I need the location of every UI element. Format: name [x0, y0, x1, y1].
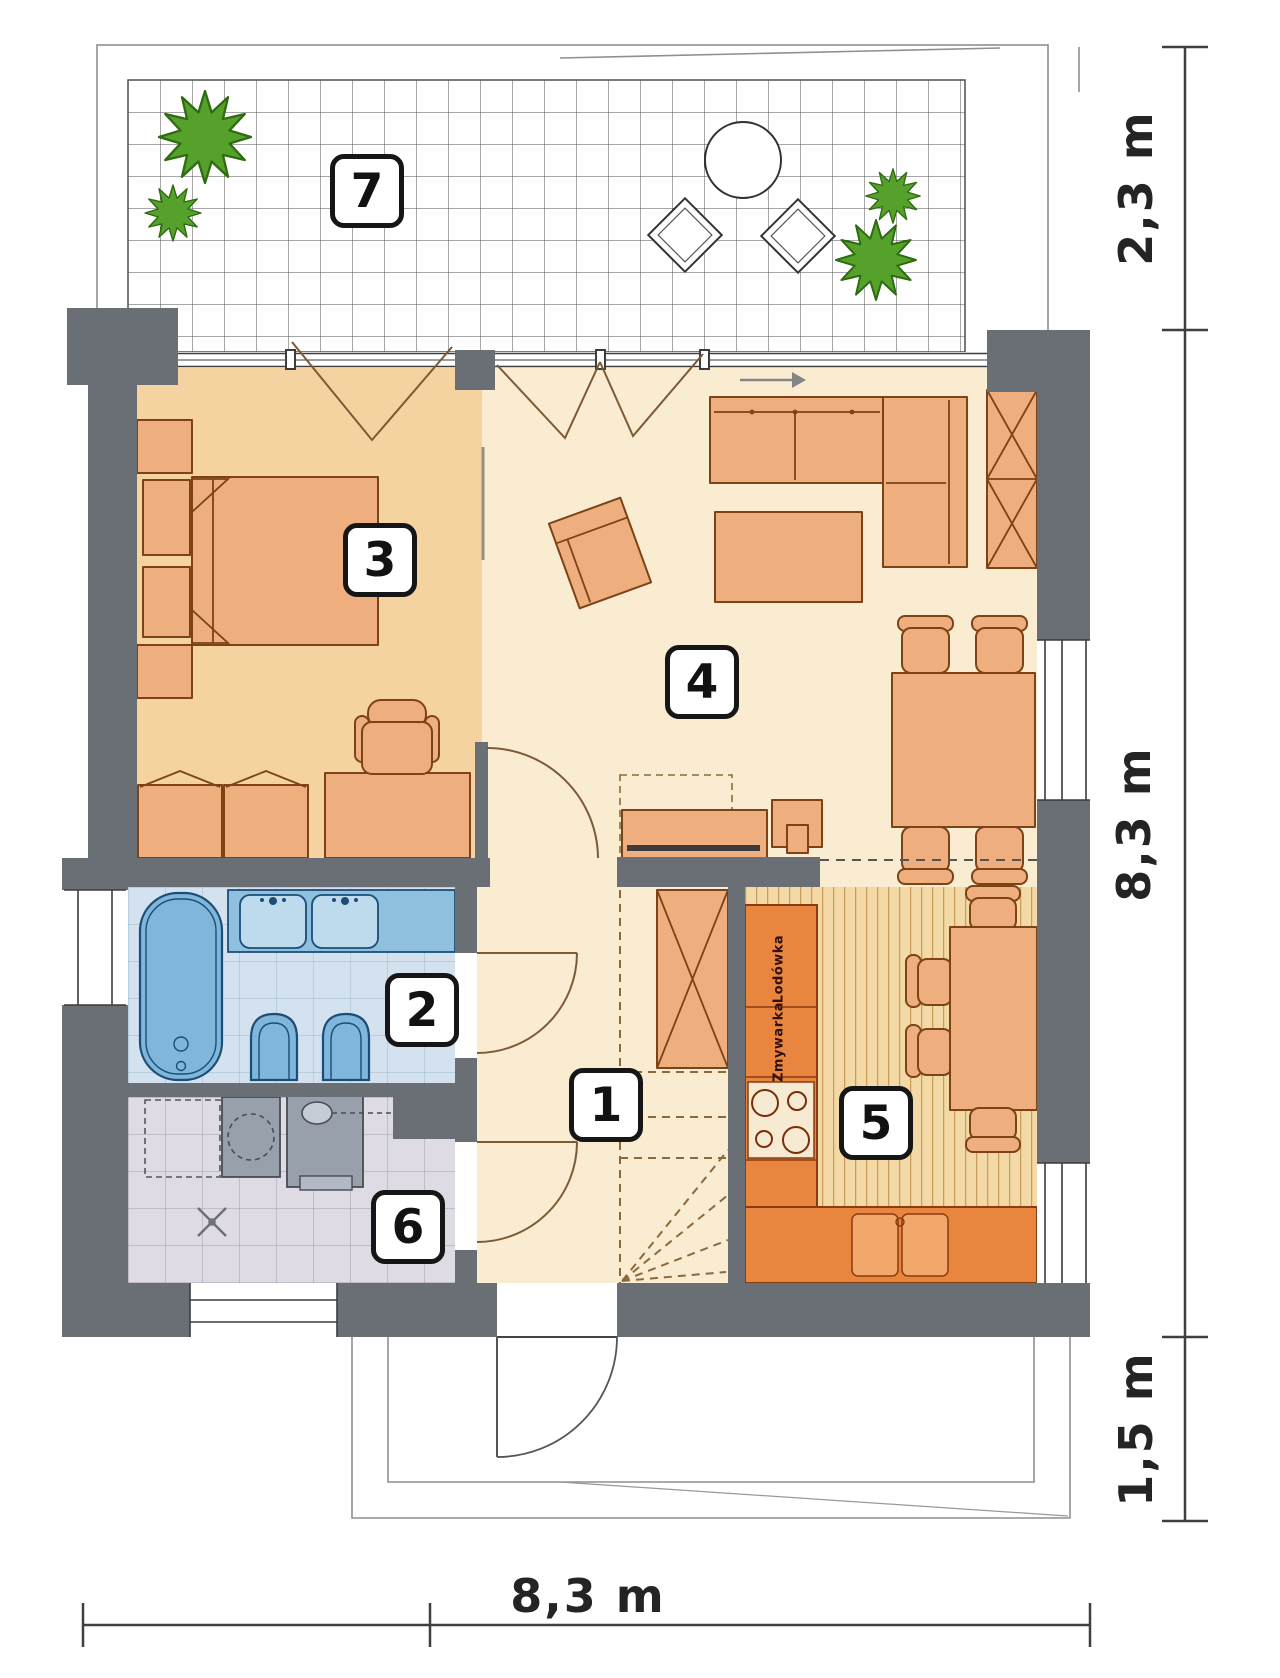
bathroom-sink	[312, 895, 378, 948]
wall-utility-jog	[393, 1097, 455, 1139]
dining-chair	[972, 827, 1027, 884]
room-badge-terrace: 7	[330, 154, 404, 228]
coffee-table	[715, 512, 862, 602]
dining-chair	[898, 616, 953, 673]
porch-outer	[352, 1337, 1070, 1518]
room-badge-living: 4	[665, 645, 739, 719]
dimension-line-right	[1162, 47, 1208, 1521]
bedroom-cabinet	[137, 420, 192, 473]
terrace-round-table	[705, 122, 781, 198]
dim-label-house-depth: 8,3 m	[1107, 746, 1161, 901]
dim-label-porch-depth: 1,5 m	[1109, 1351, 1163, 1506]
fridge-label: Lodówka	[772, 935, 787, 1003]
room-badge-kitchen: 5	[839, 1086, 913, 1160]
living-wardrobe	[987, 390, 1037, 568]
nightstand	[143, 567, 190, 637]
kitchen-chair	[906, 955, 952, 1007]
hall-cabinet	[657, 890, 728, 1068]
kitchen-table	[950, 927, 1037, 1110]
wall-bath-right	[455, 887, 477, 953]
room-number: 7	[351, 168, 384, 215]
porch	[352, 1337, 1070, 1518]
toilet	[323, 1014, 369, 1080]
stove	[748, 1082, 814, 1158]
wall-corner-top-right	[987, 330, 1090, 392]
tv	[627, 845, 760, 851]
dining-chair	[972, 616, 1027, 673]
desk	[325, 773, 470, 858]
bedroom-cabinet	[137, 645, 192, 698]
bathtub	[140, 893, 222, 1080]
wall-bedroom-bottom	[62, 858, 490, 887]
wall-bath-utility	[128, 1083, 455, 1097]
room-badge-bedroom: 3	[343, 523, 417, 597]
wall-pier	[455, 350, 495, 390]
dim-label-house-width: 8,3 m	[510, 1569, 665, 1623]
floor-plan: 7 3 4 2 1 5 6 2,3 m 8,3 m 1,5 m 8,3 m Lo…	[0, 0, 1280, 1678]
wall-right-mid	[1037, 800, 1090, 1163]
kitchen-chair	[966, 886, 1020, 930]
kitchen-chair	[966, 1108, 1020, 1152]
wall-bath-right	[455, 1058, 477, 1142]
dining-chair	[898, 827, 953, 884]
room-number: 5	[860, 1100, 893, 1147]
door-jamb	[700, 350, 709, 369]
window-kitchen-right	[1037, 1163, 1090, 1283]
desk-chair	[355, 700, 439, 774]
wall-util-right	[455, 1250, 477, 1283]
room-number: 2	[406, 987, 439, 1034]
terrace-roof-edge-line	[560, 48, 1000, 58]
door-jamb	[286, 350, 295, 369]
window-utility-bottom	[190, 1283, 337, 1337]
room-number: 4	[686, 659, 719, 706]
room-number: 3	[364, 537, 397, 584]
wall-right-upper	[1037, 392, 1090, 640]
terrace	[97, 45, 1079, 355]
porch-slope-line	[560, 1482, 1068, 1516]
room-badge-bathroom: 2	[385, 973, 459, 1047]
room-badge-hall: 1	[569, 1068, 643, 1142]
room-badge-utility: 6	[371, 1190, 445, 1264]
partition-bedroom-hall	[475, 742, 488, 858]
entrance-opening	[497, 1283, 617, 1337]
room-number: 6	[392, 1204, 425, 1251]
bathroom-sink	[240, 895, 306, 948]
window-living-right	[1037, 640, 1090, 800]
wall-left-upper	[88, 352, 137, 862]
nightstand	[143, 480, 190, 555]
entrance-door	[497, 1337, 617, 1457]
toilet	[251, 1014, 297, 1080]
bedroom-wardrobe	[138, 771, 222, 858]
porch-inner	[388, 1337, 1034, 1482]
room-number: 1	[590, 1082, 623, 1129]
dim-label-terrace-depth: 2,3 m	[1109, 110, 1163, 265]
dishwasher-label: Zmywarka	[772, 1002, 787, 1082]
bedroom-wardrobe	[224, 771, 308, 858]
window-bathroom-left	[64, 890, 126, 1005]
wall-hall-top	[617, 857, 820, 887]
washing-machine	[222, 1097, 280, 1177]
terrace-grid	[128, 80, 965, 352]
kitchen-chair	[906, 1025, 952, 1077]
wall-hall-kitchen	[728, 887, 745, 1283]
dining-table	[892, 673, 1035, 827]
side-cabinet	[772, 800, 822, 853]
floor-plan-drawing	[0, 0, 1280, 1678]
